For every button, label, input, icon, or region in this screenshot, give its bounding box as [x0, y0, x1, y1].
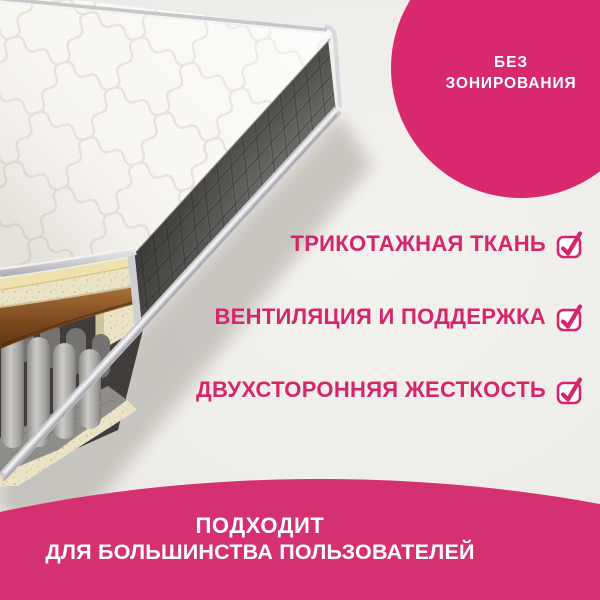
feature-row-ventilation: ВЕНТИЛЯЦИЯ И ПОДДЕРЖКА — [214, 302, 583, 332]
feature-row-knit-fabric: ТРИКОТАЖНАЯ ТКАНЬ — [290, 229, 583, 259]
feature-label: ВЕНТИЛЯЦИЯ И ПОДДЕРЖКА — [214, 302, 546, 332]
feature-label: ТРИКОТАЖНАЯ ТКАНЬ — [290, 229, 546, 259]
checkbox-checked-icon — [556, 229, 583, 259]
checkbox-checked-icon — [556, 302, 583, 332]
product-infographic: БЕЗ ЗОНИРОВАНИЯ ТРИКОТАЖНАЯ ТКАНЬ ВЕНТИЛ… — [0, 0, 600, 600]
banner-line2: ДЛЯ БОЛЬШИНСТВА ПОЛЬЗОВАТЕЛЕЙ — [0, 539, 520, 565]
feature-row-firmness: ДВУХСТОРОННЯЯ ЖЕСТКОСТЬ — [196, 375, 583, 405]
feature-label: ДВУХСТОРОННЯЯ ЖЕСТКОСТЬ — [196, 375, 546, 405]
badge-line2: ЗОНИРОВАНИЯ — [391, 73, 600, 94]
banner-line1: ПОДХОДИТ — [0, 513, 520, 539]
checkbox-checked-icon — [556, 375, 583, 405]
badge-line1: БЕЗ — [391, 52, 600, 73]
badge-text: БЕЗ ЗОНИРОВАНИЯ — [391, 52, 600, 94]
banner-text: ПОДХОДИТ ДЛЯ БОЛЬШИНСТВА ПОЛЬЗОВАТЕЛЕЙ — [0, 513, 520, 565]
